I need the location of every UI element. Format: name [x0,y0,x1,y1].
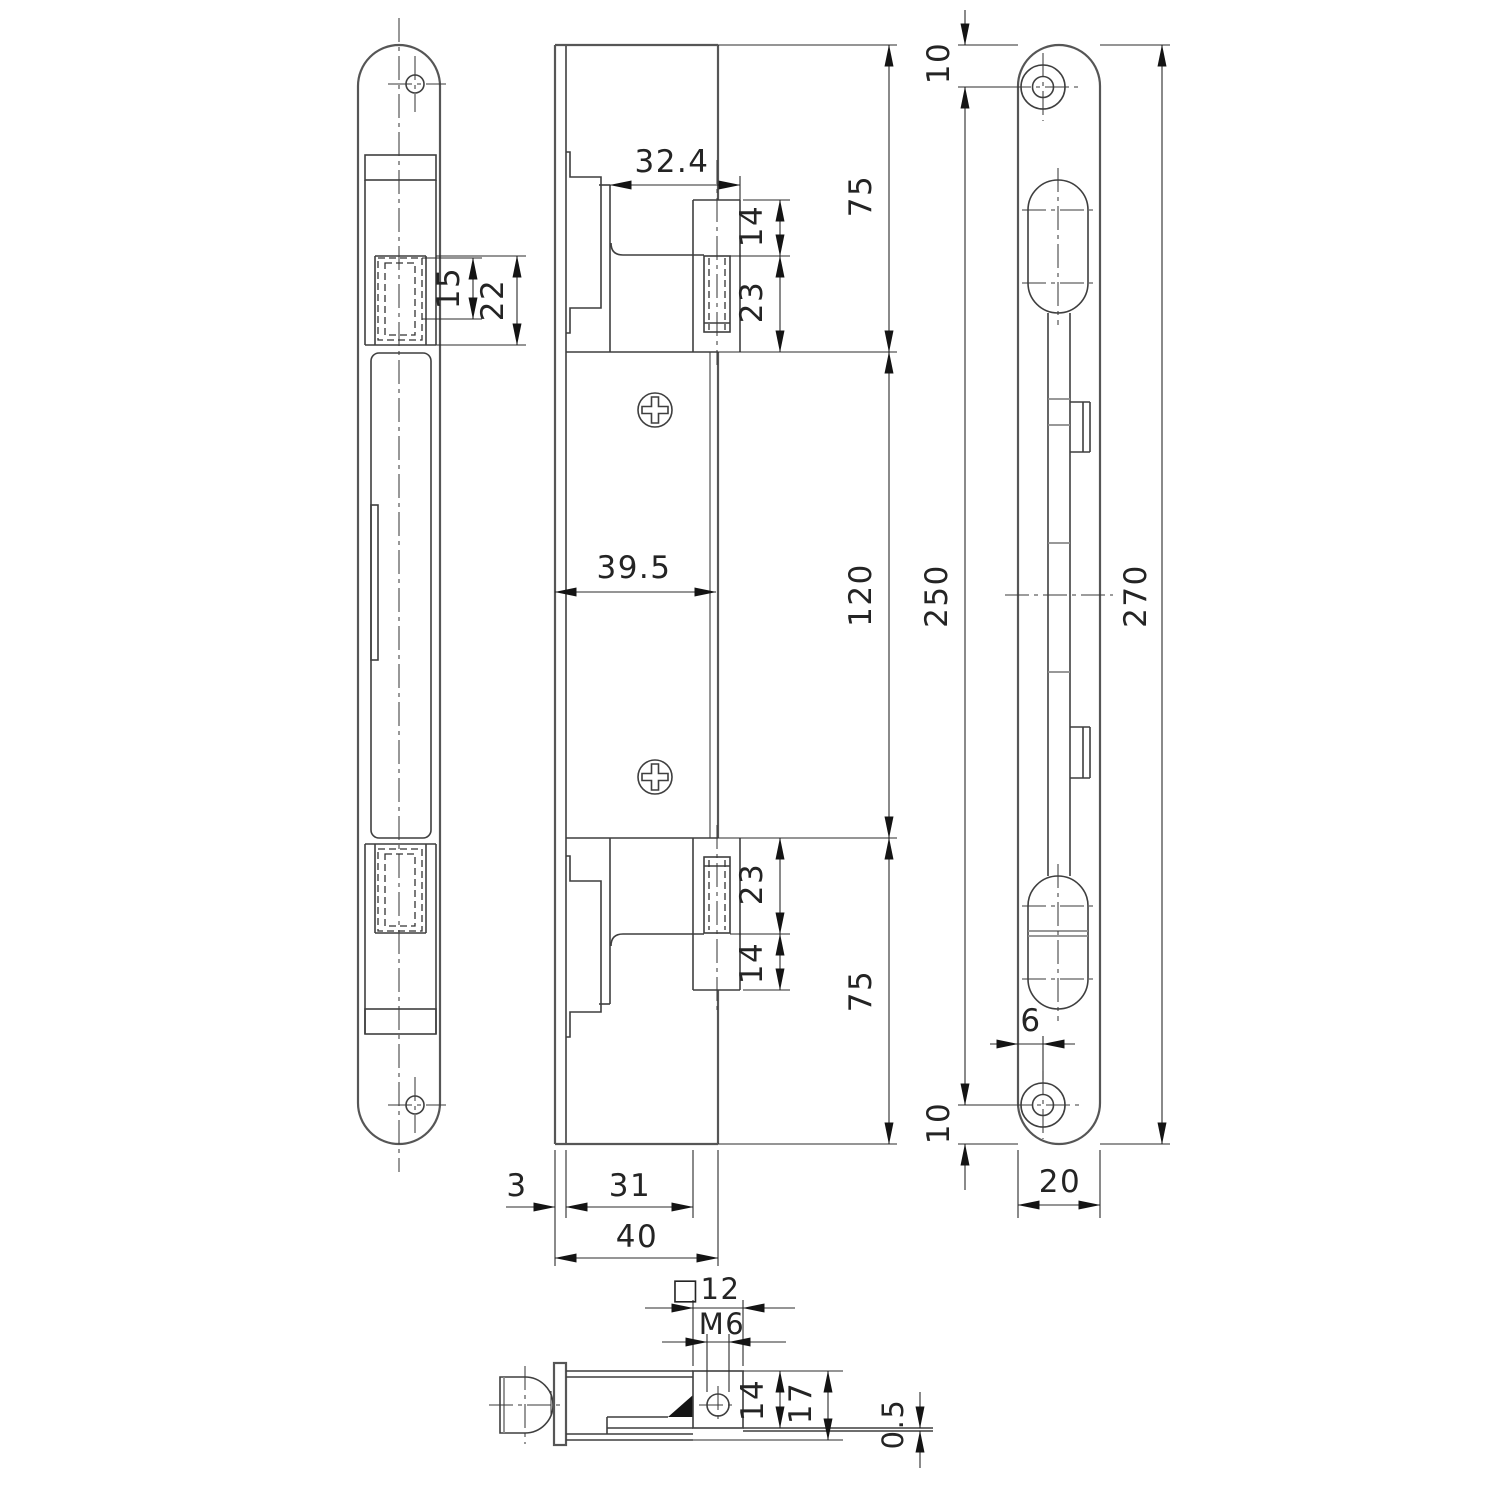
dim-15-label: 15 [431,267,467,309]
dim-23-top-label: 23 [734,281,770,323]
front-view: 15 22 [358,18,526,1172]
dim-0.5-label: 0.5 [876,1399,910,1450]
dim-32.4-label: 32.4 [634,144,709,180]
side-bottom-bracket [566,856,601,1037]
side-top-bracket [566,152,601,333]
dim-31-label: 31 [609,1168,651,1204]
dim-10-bottom-label: 10 [921,1102,957,1144]
dim-sq12-label: □12 [672,1272,741,1306]
dim-14-top-label: 14 [734,205,770,247]
dim-10-top-label: 10 [921,42,957,84]
dim-14-section-label: 14 [735,1379,771,1421]
strike-plate-view: 10 250 270 6 10 20 [919,10,1170,1218]
dim-75-bottom-label: 75 [843,970,879,1012]
side-view: 32.4 14 23 75 120 39.5 23 14 75 3 31 40 [506,45,897,1266]
drawing-canvas: 15 22 [0,0,1487,1487]
dim-14-bottom-label: 14 [734,942,770,984]
section-faceplate [554,1363,566,1445]
dim-23-bottom-label: 23 [734,863,770,905]
technical-drawing-page: 15 22 [0,0,1487,1487]
dim-39.5-label: 39.5 [596,550,671,586]
front-upper-band [365,155,436,180]
front-body-recess [371,353,431,838]
front-lower-band [365,1009,436,1034]
dim-6-label: 6 [1020,1003,1041,1039]
plate-top-tab [1070,402,1090,452]
phillips-screw-icon [638,760,672,794]
dim-120-label: 120 [843,563,879,627]
section-wedge [668,1395,693,1417]
front-side-slot [371,505,378,660]
dim-17-label: 17 [783,1382,819,1424]
phillips-screw-icon [638,393,672,427]
dim-20-label: 20 [1039,1164,1081,1200]
dim-250-label: 250 [919,564,955,628]
dim-22-label: 22 [475,279,511,321]
dim-270-label: 270 [1118,564,1154,628]
plate-bottom-tab [1070,727,1090,778]
dim-3-label: 3 [506,1168,527,1204]
dim-75-top-label: 75 [843,175,879,217]
dim-40-label: 40 [616,1219,658,1255]
section-view: □12 M6 14 17 0.5 [489,1272,933,1468]
dim-m6-label: M6 [699,1307,745,1341]
